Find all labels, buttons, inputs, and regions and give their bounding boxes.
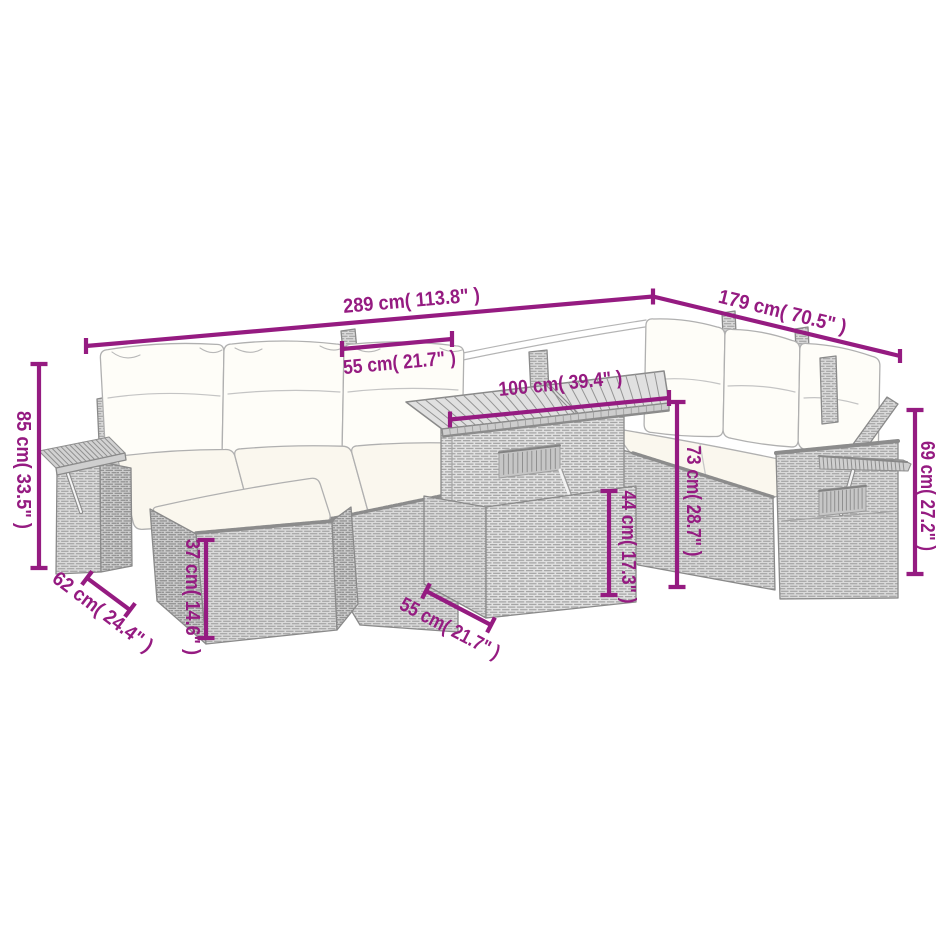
svg-text:69 cm( 27.2" ): 69 cm( 27.2" ) xyxy=(916,441,938,551)
svg-text:85 cm( 33.5" ): 85 cm( 33.5" ) xyxy=(12,411,34,529)
svg-text:37 cm( 14.6" ): 37 cm( 14.6" ) xyxy=(181,539,203,655)
svg-text:44 cm( 17.3" ): 44 cm( 17.3" ) xyxy=(617,491,639,604)
svg-text:73 cm( 28.7" ): 73 cm( 28.7" ) xyxy=(682,446,704,557)
